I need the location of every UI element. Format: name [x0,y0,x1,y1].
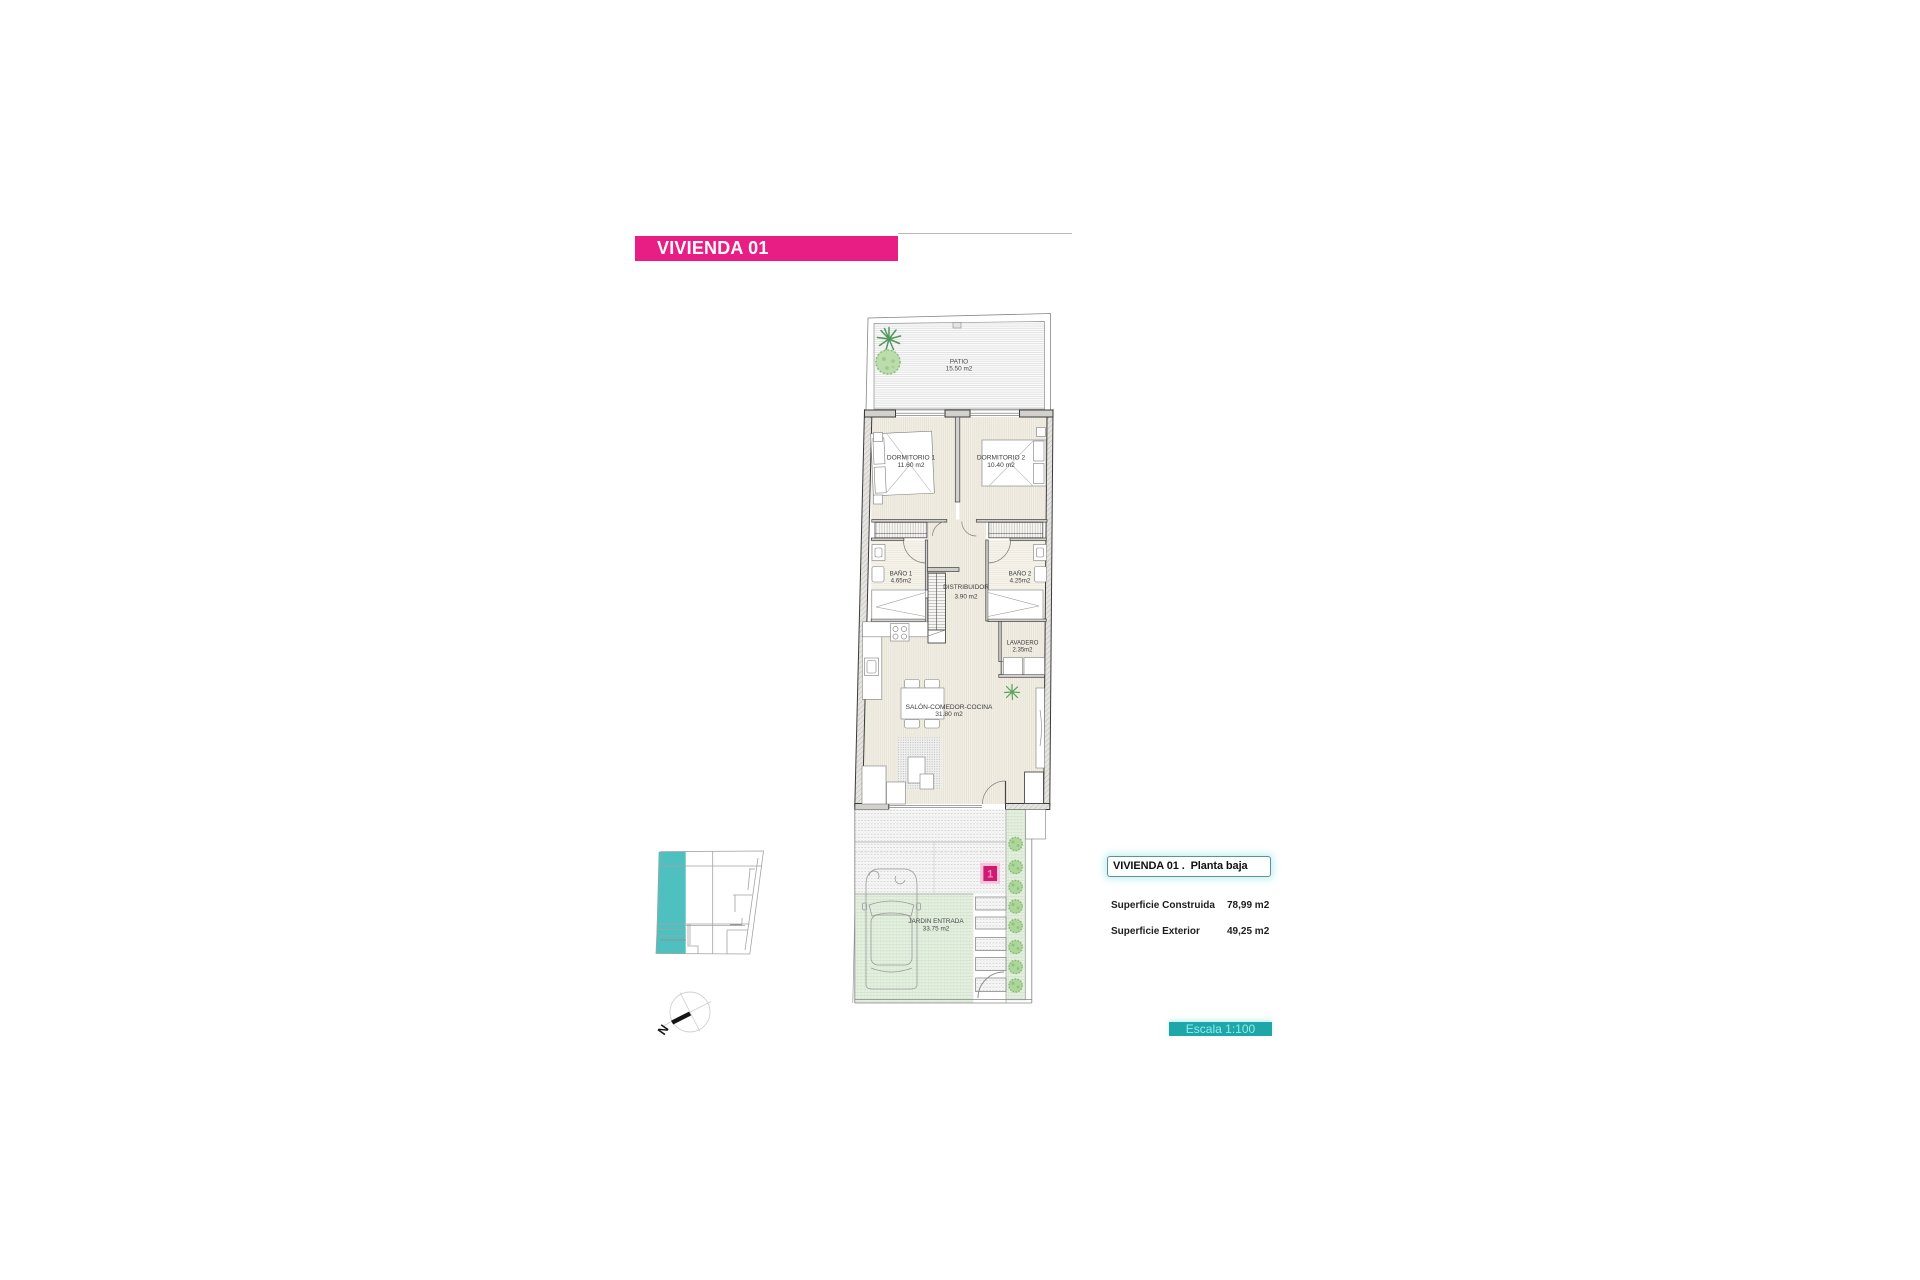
svg-text:33.75 m2: 33.75 m2 [923,926,950,933]
svg-text:2.35m2: 2.35m2 [1012,648,1033,654]
svg-text:DORMITORIO 1: DORMITORIO 1 [887,455,936,462]
svg-text:BAÑO 1: BAÑO 1 [890,571,913,578]
svg-text:15.50 m2: 15.50 m2 [946,366,973,373]
svg-text:LAVADERO: LAVADERO [1007,641,1039,647]
svg-text:SALÓN-COMEDOR-COCINA: SALÓN-COMEDOR-COCINA [906,702,993,711]
svg-text:10.40 m2: 10.40 m2 [987,462,1015,469]
svg-text:DISTRIBUIDOR: DISTRIBUIDOR [943,584,989,591]
svg-text:JARDIN ENTRADA: JARDIN ENTRADA [908,918,964,925]
svg-text:4.25m2: 4.25m2 [1010,578,1031,585]
svg-text:PATIO: PATIO [950,359,968,366]
svg-text:31.80 m2: 31.80 m2 [935,711,963,718]
svg-text:3.90 m2: 3.90 m2 [954,594,978,601]
svg-text:11.60 m2: 11.60 m2 [897,462,924,469]
svg-text:1: 1 [987,869,993,881]
svg-text:N: N [655,1022,672,1037]
svg-text:BAÑO 2: BAÑO 2 [1009,571,1032,578]
svg-text:DORMITORIO 2: DORMITORIO 2 [977,455,1026,462]
svg-text:4.65m2: 4.65m2 [891,578,912,585]
